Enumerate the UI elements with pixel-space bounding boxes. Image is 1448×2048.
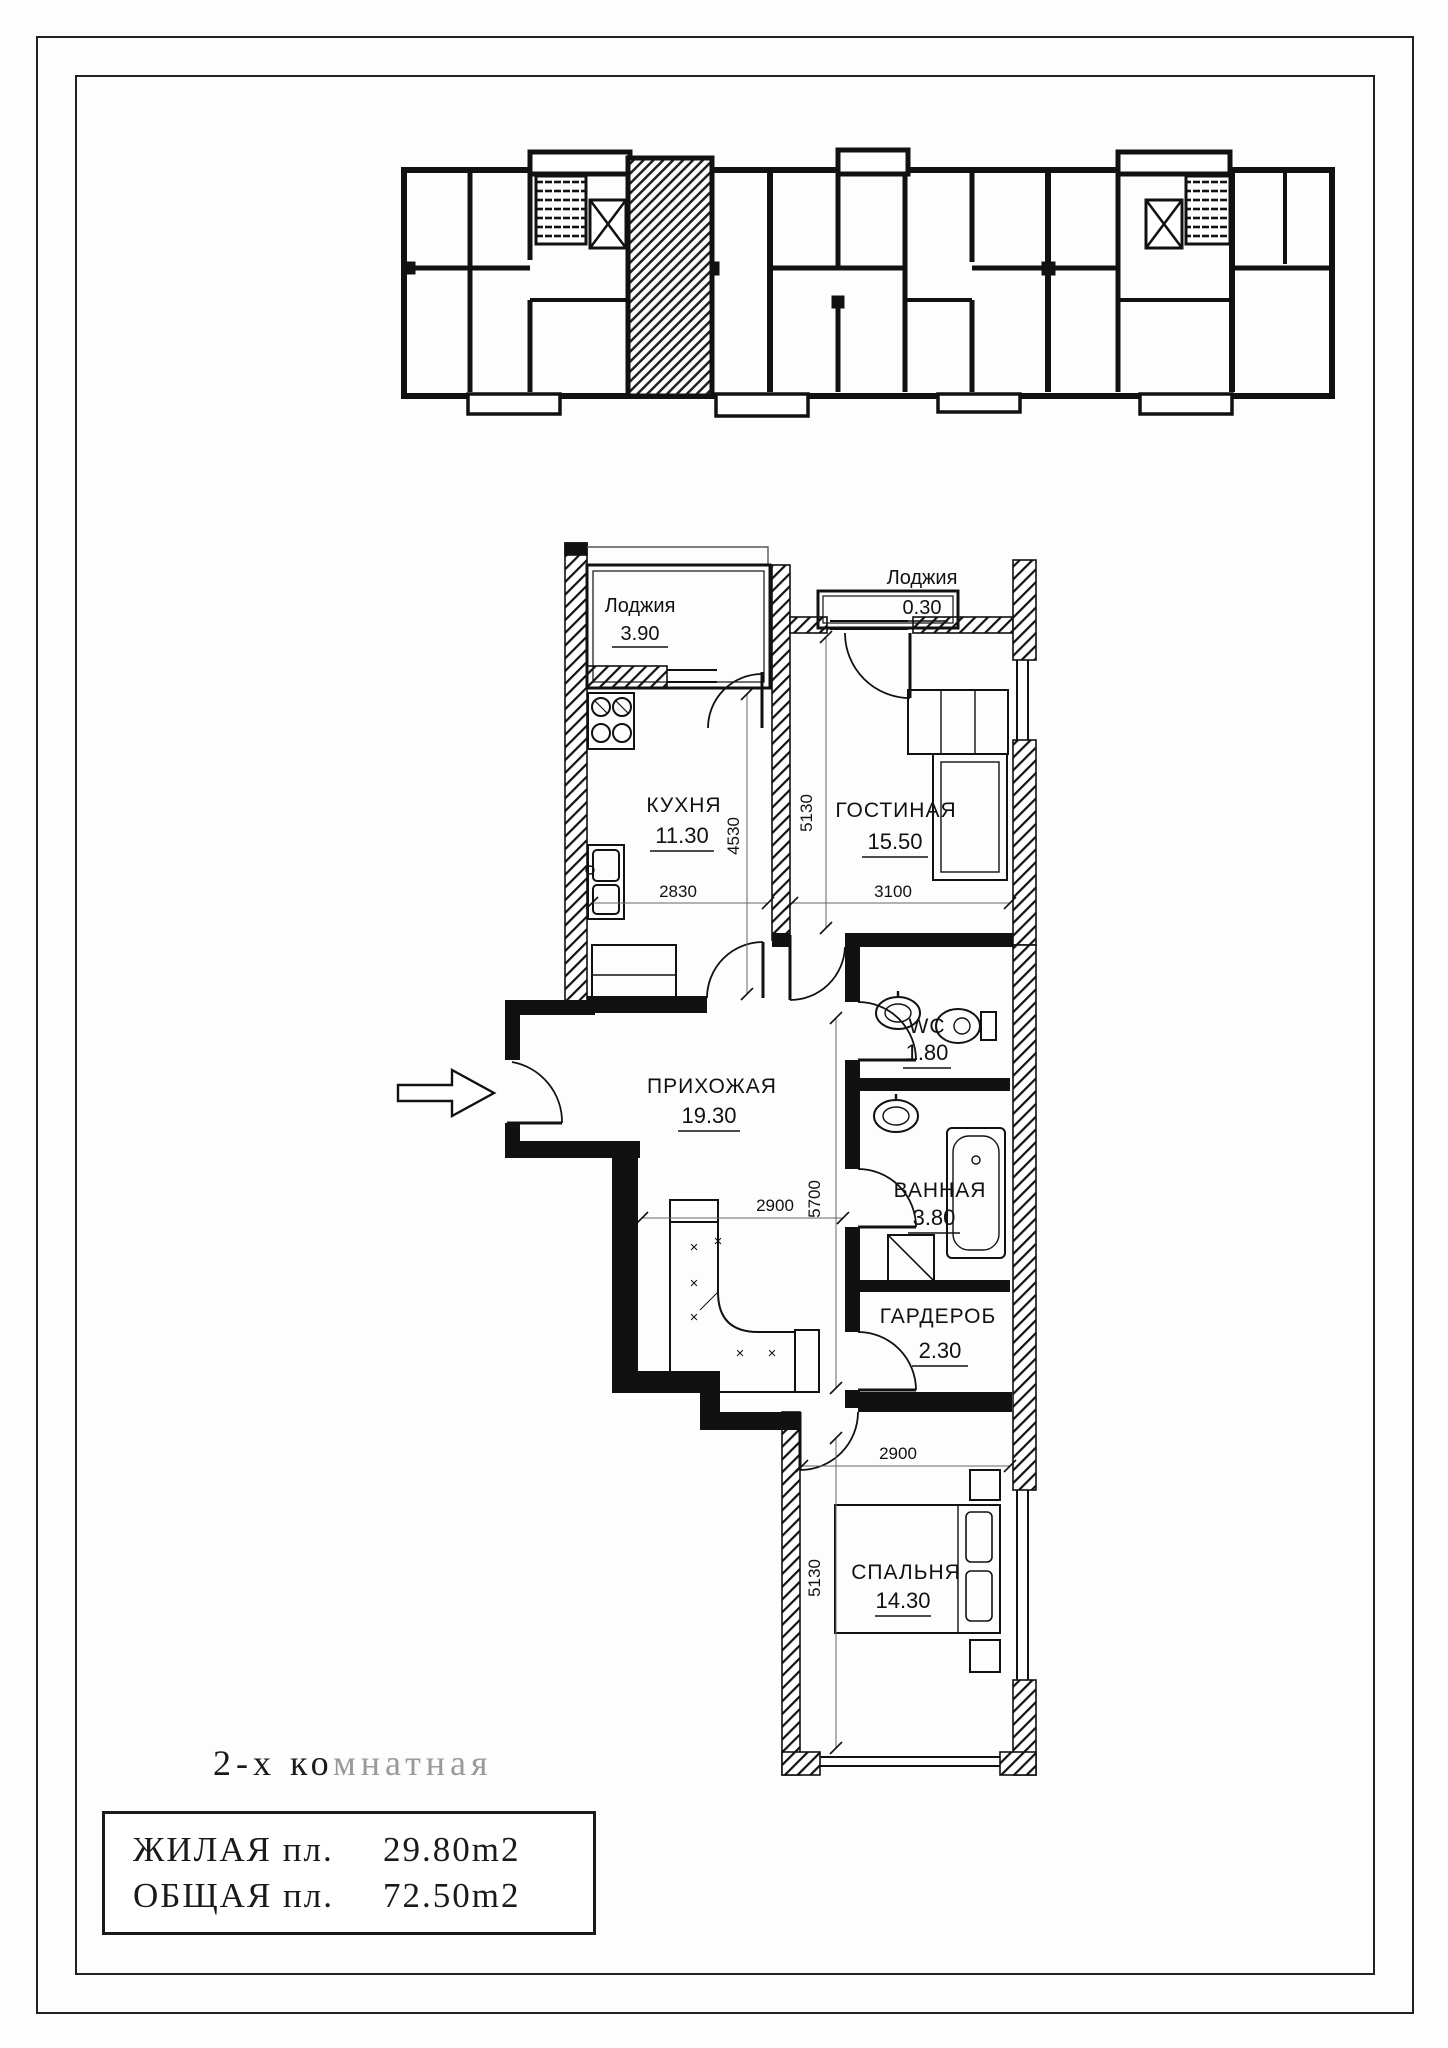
room-label-loggia-top: Лоджия 3.90	[605, 595, 676, 647]
entrance-arrow	[398, 1070, 494, 1116]
stair-core-right	[1146, 176, 1230, 248]
caption-watermarked-part: мнатная	[333, 1743, 493, 1783]
svg-text:3.90: 3.90	[621, 623, 660, 645]
svg-text:×: ×	[736, 1345, 745, 1362]
door-wardrobe	[858, 1332, 916, 1390]
kitchen-counter-icon	[592, 945, 676, 997]
svg-text:14.30: 14.30	[875, 1588, 930, 1613]
table-row-living-area: ЖИЛАЯ пл. 29.80m2	[105, 1830, 593, 1870]
dim-kitchen-width: 2830	[659, 882, 697, 901]
room-label-bath: ВАННАЯ 3.80	[894, 1179, 987, 1233]
washing-machine-icon	[888, 1235, 934, 1281]
apartment-plan: ××× ×××	[398, 543, 1036, 1775]
door-bedroom	[800, 1412, 858, 1470]
svg-text:СПАЛЬНЯ: СПАЛЬНЯ	[851, 1561, 961, 1584]
area-summary-table: ЖИЛАЯ пл. 29.80m2 ОБЩАЯ пл. 72.50m2	[102, 1811, 596, 1935]
room-label-wc: WC 1.80	[903, 1015, 951, 1068]
svg-text:×: ×	[690, 1239, 699, 1256]
table-row-total-area: ОБЩАЯ пл. 72.50m2	[105, 1876, 593, 1916]
dim-bedroom-width: 2900	[879, 1444, 917, 1463]
living-area-label: ЖИЛАЯ пл.	[133, 1830, 383, 1870]
total-area-label: ОБЩАЯ пл.	[133, 1876, 383, 1916]
dim-hall-width: 2900	[756, 1196, 794, 1215]
svg-text:×: ×	[714, 1233, 723, 1250]
svg-text:Лоджия: Лоджия	[605, 595, 676, 617]
sofa-tuft-marks: ××× ×××	[690, 1233, 777, 1362]
room-label-wardrobe: ГАРДЕРОБ 2.30	[880, 1305, 996, 1366]
svg-text:19.30: 19.30	[681, 1103, 736, 1128]
wardrobe-living-icon	[908, 690, 1008, 754]
nightstand-bottom-icon	[970, 1640, 1000, 1672]
door-living-balcony	[845, 633, 910, 698]
stair-core-left	[536, 176, 626, 248]
total-area-value: 72.50m2	[383, 1876, 520, 1916]
dim-living-width: 3100	[874, 882, 912, 901]
svg-text:ПРИХОЖАЯ: ПРИХОЖАЯ	[647, 1075, 777, 1098]
dim-kitchen-height: 4530	[724, 817, 743, 855]
floorplan-sheet: { "caption": { "black_part": "2-х ко", "…	[0, 0, 1448, 2048]
svg-text:WC: WC	[909, 1015, 946, 1038]
door-entrance	[507, 1062, 562, 1123]
room-label-bedroom: СПАЛЬНЯ 14.30	[851, 1561, 961, 1616]
apartment-type-caption: 2-х комнатная	[213, 1742, 813, 1784]
svg-text:ГАРДЕРОБ: ГАРДЕРОБ	[880, 1305, 996, 1328]
dim-bedroom-height: 5130	[805, 1559, 824, 1597]
svg-text:×: ×	[690, 1309, 699, 1326]
corner-sofa-icon	[670, 1200, 819, 1392]
svg-text:0.30: 0.30	[903, 597, 942, 619]
room-label-living: ГОСТИНАЯ 15.50	[835, 799, 956, 857]
highlighted-unit	[628, 158, 712, 396]
door-living	[790, 935, 845, 1000]
svg-text:×: ×	[690, 1275, 699, 1292]
bath-sink-icon	[874, 1094, 918, 1132]
svg-text:×: ×	[768, 1345, 777, 1362]
door-kitchen-balcony	[708, 672, 762, 728]
stove-icon	[588, 693, 634, 749]
room-label-hall: ПРИХОЖАЯ 19.30	[647, 1075, 777, 1131]
dim-living-height: 5130	[797, 794, 816, 832]
dim-hall-height: 5700	[805, 1180, 824, 1218]
svg-text:ГОСТИНАЯ: ГОСТИНАЯ	[835, 799, 956, 822]
svg-text:3.80: 3.80	[913, 1205, 956, 1230]
room-label-kitchen: КУХНЯ 11.30	[646, 794, 721, 851]
drawing-canvas: ××× ×××	[0, 0, 1448, 2048]
kitchen-sink-icon	[586, 845, 624, 919]
svg-text:15.50: 15.50	[867, 829, 922, 854]
svg-text:КУХНЯ: КУХНЯ	[646, 794, 721, 817]
door-kitchen	[707, 942, 763, 998]
svg-text:Лоджия: Лоджия	[887, 567, 958, 589]
svg-text:1.80: 1.80	[906, 1040, 949, 1065]
nightstand-top-icon	[970, 1470, 1000, 1500]
room-label-loggia-living: Лоджия 0.30	[887, 567, 958, 621]
caption-black-part: 2-х ко	[213, 1743, 333, 1783]
living-area-value: 29.80m2	[383, 1830, 520, 1870]
building-overview	[404, 150, 1332, 416]
svg-text:ВАННАЯ: ВАННАЯ	[894, 1179, 987, 1202]
svg-text:2.30: 2.30	[919, 1338, 962, 1363]
svg-text:11.30: 11.30	[655, 823, 708, 848]
